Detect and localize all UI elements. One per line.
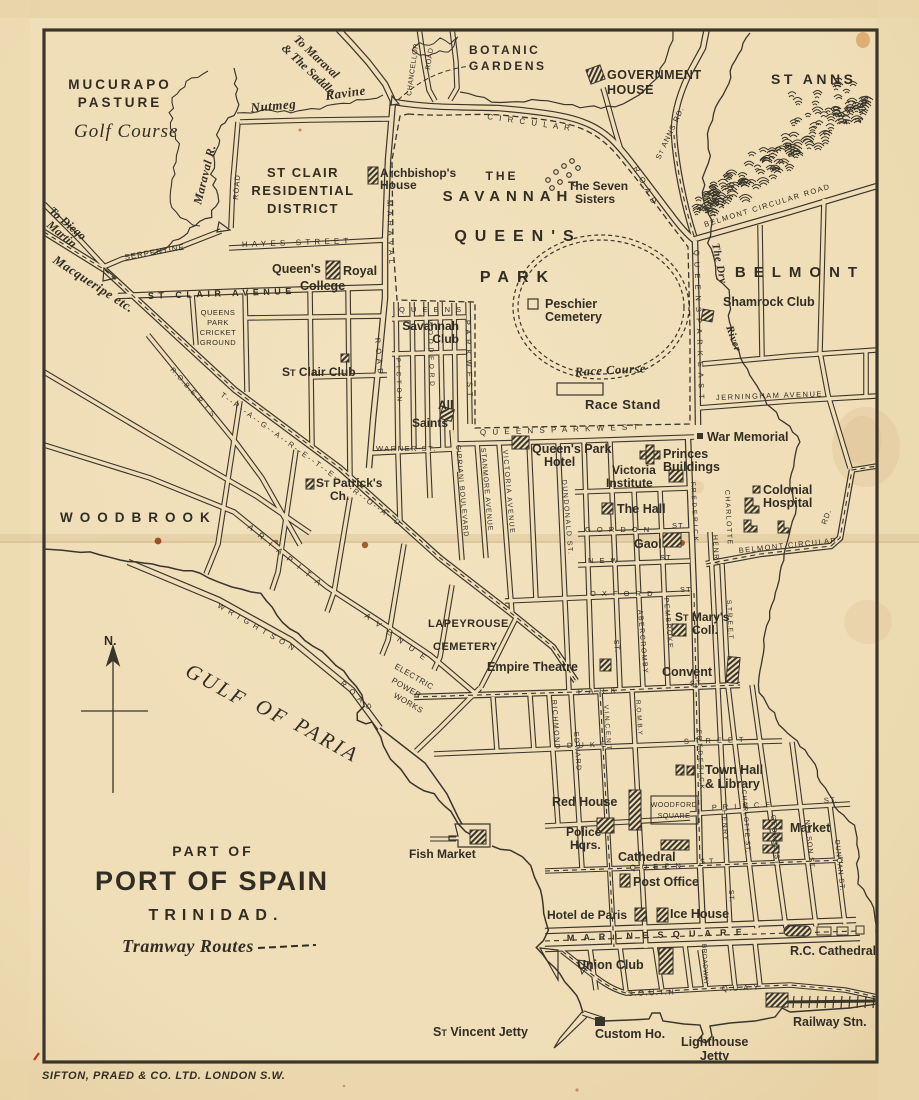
svg-text:R.C. Cathedral: R.C. Cathedral <box>790 944 876 958</box>
svg-text:WARNER ST.: WARNER ST. <box>376 444 437 453</box>
svg-text:Q U E E N S: Q U E E N S <box>399 305 463 314</box>
svg-text:Hqrs.: Hqrs. <box>570 838 601 852</box>
svg-text:Ice House: Ice House <box>670 907 729 921</box>
svg-text:PARK: PARK <box>207 318 229 327</box>
svg-text:QUEENS: QUEENS <box>201 308 236 317</box>
svg-text:House: House <box>380 178 417 192</box>
svg-text:Custom Ho.: Custom Ho. <box>595 1027 665 1041</box>
svg-text:CEMETERY: CEMETERY <box>433 641 498 653</box>
svg-text:LAPEYROUSE: LAPEYROUSE <box>428 618 509 630</box>
svg-text:Cemetery: Cemetery <box>545 310 602 324</box>
svg-text:Hotel de Paris: Hotel de Paris <box>547 908 627 922</box>
svg-text:Princes: Princes <box>663 447 708 461</box>
svg-text:SQUARE: SQUARE <box>658 813 691 820</box>
svg-text:ST ANNS: ST ANNS <box>771 71 856 87</box>
svg-text:ST.: ST. <box>672 521 686 530</box>
svg-text:Cathedral: Cathedral <box>618 850 676 864</box>
svg-text:Peschier: Peschier <box>545 297 597 311</box>
svg-text:PASTURE: PASTURE <box>78 95 163 110</box>
svg-text:& Library: & Library <box>705 777 760 791</box>
svg-text:Shamrock Club: Shamrock Club <box>723 295 815 309</box>
svg-text:RESIDENTIAL: RESIDENTIAL <box>251 183 354 198</box>
svg-text:Union Club: Union Club <box>577 958 644 972</box>
svg-text:GOVERNMENT: GOVERNMENT <box>607 68 702 82</box>
svg-text:ST Mary's: ST Mary's <box>675 610 730 624</box>
svg-text:TRINIDAD.: TRINIDAD. <box>149 907 284 924</box>
svg-text:Queen's Park: Queen's Park <box>532 442 611 456</box>
svg-text:PARK: PARK <box>480 269 556 286</box>
svg-text:Queen's: Queen's <box>272 262 321 276</box>
svg-text:Tramway Routes: Tramway Routes <box>122 936 254 956</box>
svg-text:Lighthouse: Lighthouse <box>681 1035 748 1049</box>
svg-text:ST.: ST. <box>660 553 674 562</box>
svg-text:Institute: Institute <box>606 476 653 490</box>
svg-text:Gaol: Gaol <box>634 537 662 551</box>
svg-text:O X F O R D: O X F O R D <box>590 589 655 598</box>
svg-text:GROUND: GROUND <box>200 338 236 347</box>
svg-text:WOODBROOK: WOODBROOK <box>60 510 217 525</box>
svg-text:Sisters: Sisters <box>575 192 615 206</box>
svg-text:Red House: Red House <box>552 795 617 809</box>
svg-text:The Hall: The Hall <box>617 502 666 516</box>
svg-text:Buildings: Buildings <box>663 460 720 474</box>
svg-text:PART OF: PART OF <box>172 843 253 859</box>
svg-text:ST.: ST. <box>690 679 704 688</box>
svg-text:Golf Course: Golf Course <box>74 121 178 142</box>
svg-text:Race Stand: Race Stand <box>585 397 661 412</box>
svg-text:Empire Theatre: Empire Theatre <box>487 660 578 674</box>
svg-text:Saints: Saints <box>412 416 448 430</box>
svg-text:War Memorial: War Memorial <box>707 430 789 444</box>
svg-text:Police: Police <box>566 825 602 839</box>
svg-text:ST.: ST. <box>824 795 838 805</box>
svg-text:Royal: Royal <box>343 264 377 278</box>
svg-text:GARDENS: GARDENS <box>469 59 547 73</box>
svg-text:N E W: N E W <box>588 556 620 565</box>
svg-text:Victoria: Victoria <box>612 463 656 477</box>
svg-text:BELMONT: BELMONT <box>735 264 865 281</box>
svg-text:College: College <box>300 279 345 293</box>
svg-text:WOODFORD: WOODFORD <box>651 802 697 809</box>
svg-text:S.O.U.T.H: S.O.U.T.H <box>628 987 676 998</box>
svg-text:D U K E: D U K E <box>567 740 608 750</box>
svg-text:Fish Market: Fish Market <box>409 847 476 861</box>
svg-text:PORT OF SPAIN: PORT OF SPAIN <box>95 866 329 896</box>
svg-text:ST.: ST. <box>680 585 694 594</box>
svg-text:ST.: ST. <box>727 890 735 903</box>
svg-text:Hotel: Hotel <box>544 455 575 469</box>
svg-text:The Seven: The Seven <box>568 179 628 193</box>
svg-text:THE: THE <box>486 169 519 183</box>
svg-text:HOUSE: HOUSE <box>607 83 654 97</box>
svg-text:Club: Club <box>432 332 459 346</box>
svg-text:P A R K: P A R K <box>578 686 618 696</box>
svg-text:BOTANIC: BOTANIC <box>469 43 540 57</box>
svg-text:N.: N. <box>104 634 117 648</box>
svg-text:SIFTON, PRAED & CO. LTD. LONDO: SIFTON, PRAED & CO. LTD. LONDON S.W. <box>42 1070 285 1082</box>
svg-text:Railway Stn.: Railway Stn. <box>793 1015 867 1029</box>
svg-text:Coll.: Coll. <box>692 623 718 637</box>
svg-text:MUCURAPO: MUCURAPO <box>68 77 172 92</box>
svg-text:Ch.: Ch. <box>330 489 349 503</box>
svg-text:Post Office: Post Office <box>633 875 699 889</box>
svg-text:ST.: ST. <box>612 640 620 654</box>
svg-text:Hospital: Hospital <box>763 496 812 510</box>
svg-text:Colonial: Colonial <box>763 483 812 497</box>
svg-text:Town Hall: Town Hall <box>705 763 763 777</box>
svg-text:SAVANNAH: SAVANNAH <box>443 188 574 205</box>
svg-text:G O R D O N: G O R D O N <box>585 525 651 534</box>
svg-text:ST Clair Club: ST Clair Club <box>282 365 356 379</box>
svg-text:QUEEN'S: QUEEN'S <box>454 228 581 245</box>
svg-text:CRICKET: CRICKET <box>200 328 236 337</box>
svg-text:DISTRICT: DISTRICT <box>267 201 339 216</box>
svg-text:ST CLAIR: ST CLAIR <box>267 165 339 180</box>
svg-text:All: All <box>438 398 453 412</box>
svg-text:ST Vincent Jetty: ST Vincent Jetty <box>433 1025 528 1039</box>
svg-text:S T: S T <box>700 856 715 866</box>
svg-text:Q.U.A.Y: Q.U.A.Y <box>722 983 760 993</box>
svg-text:Market: Market <box>790 821 831 835</box>
svg-text:Convent: Convent <box>662 665 713 679</box>
